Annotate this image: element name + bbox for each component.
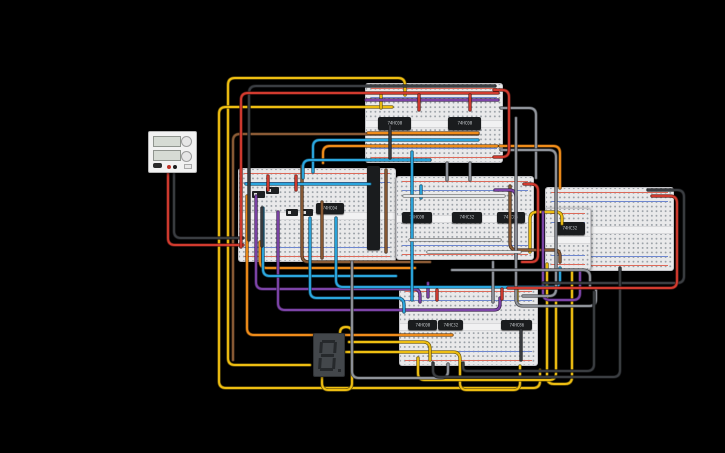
wire-layer — [0, 0, 725, 453]
wire[interactable] — [219, 107, 540, 388]
segment-f — [319, 342, 323, 353]
wire[interactable] — [249, 86, 495, 240]
psu-voltage-knob[interactable] — [181, 136, 192, 147]
wire[interactable] — [501, 108, 536, 178]
wire[interactable] — [418, 302, 556, 380]
segment-d — [320, 368, 333, 371]
seven-segment-digit — [318, 340, 337, 371]
power-supply[interactable] — [148, 131, 197, 173]
psu-current-display — [153, 150, 181, 161]
wire[interactable] — [352, 262, 448, 378]
psu-current-knob[interactable] — [181, 151, 192, 162]
segment-g — [321, 354, 334, 357]
seven-segment-display[interactable] — [313, 333, 345, 377]
psu-positive-terminal[interactable] — [167, 165, 171, 169]
wire[interactable] — [463, 292, 594, 371]
wire[interactable] — [263, 208, 396, 276]
wire[interactable] — [310, 218, 404, 312]
wire[interactable] — [508, 196, 677, 288]
psu-power-button[interactable] — [153, 163, 162, 168]
psu-voltage-display — [153, 136, 181, 147]
wire[interactable] — [233, 134, 478, 360]
circuit-canvas: 74HC0874HC0874HC0474HC0874HC3274HC8674HC… — [0, 0, 725, 453]
psu-negative-terminal[interactable] — [173, 165, 177, 169]
psu-aux-button[interactable] — [184, 164, 192, 169]
segment-b — [333, 342, 337, 353]
segment-decimal-point — [338, 369, 341, 372]
